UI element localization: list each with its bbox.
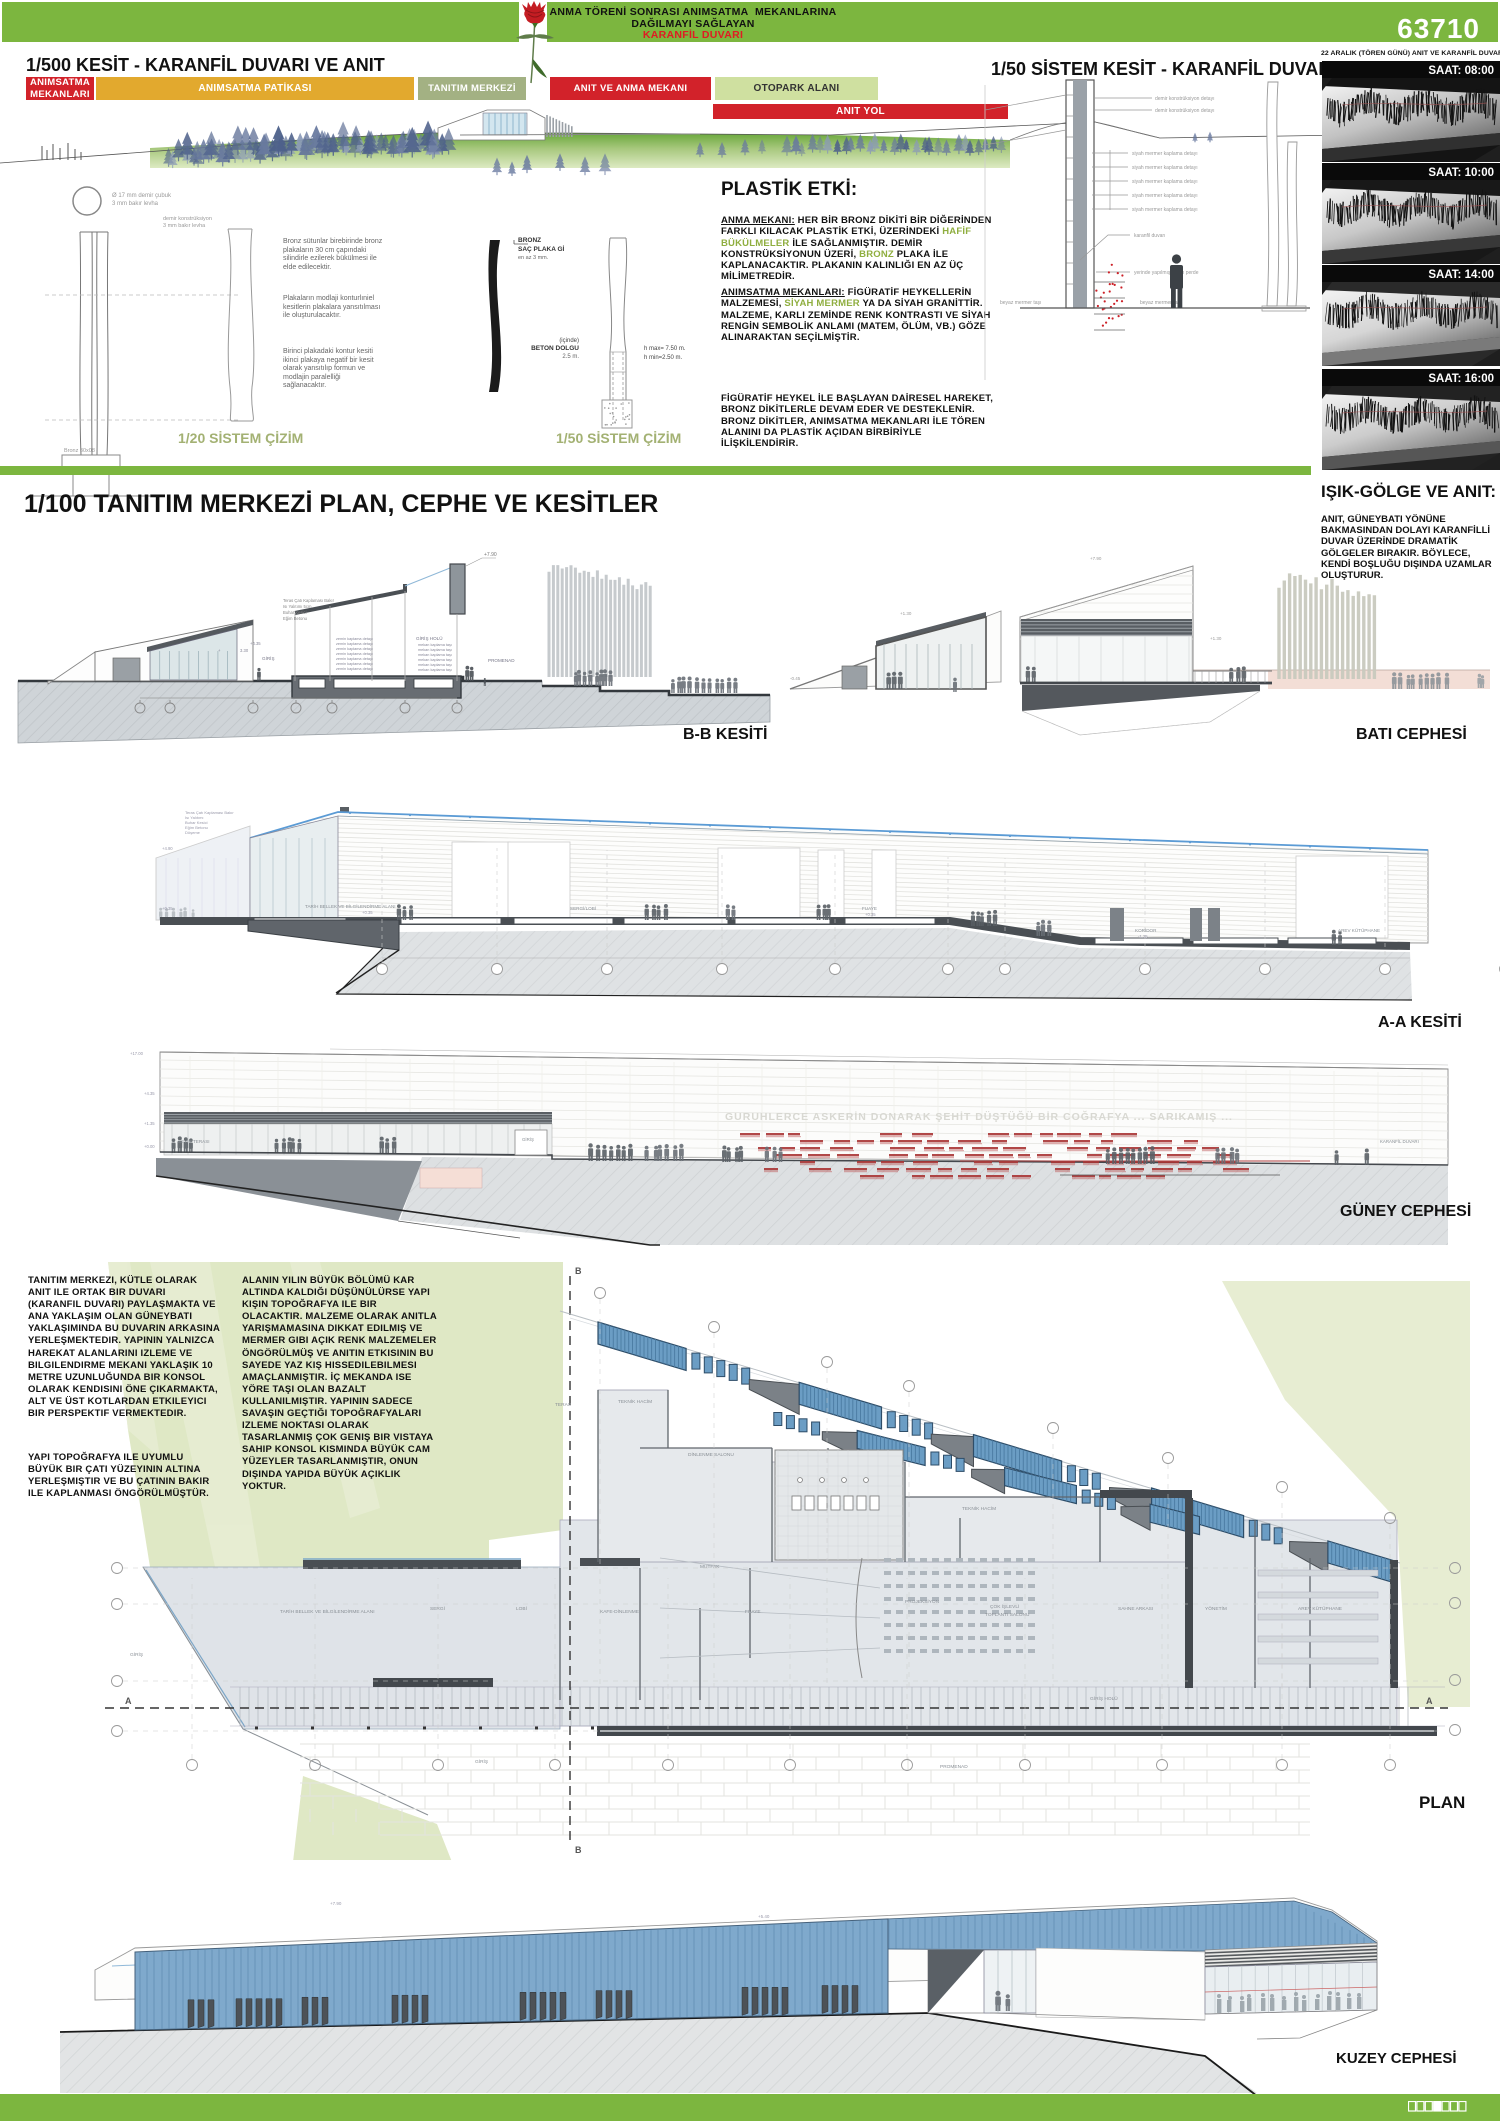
svg-text:Buhar Kesici: Buhar Kesici (283, 610, 307, 615)
svg-text:Ø 17 mm demir çubuk: Ø 17 mm demir çubuk (112, 193, 172, 199)
svg-text:demir konstrüksiyon: demir konstrüksiyon (163, 216, 212, 222)
svg-text:AREV KÜTÜPHANE: AREV KÜTÜPHANE (1298, 1605, 1342, 1612)
svg-text:SERGİ: SERGİ (430, 1605, 445, 1612)
svg-text:mekan kaplama taşı: mekan kaplama taşı (418, 648, 452, 652)
svg-text:GURUHLERCE ASKERİN DONARAK ŞEH: GURUHLERCE ASKERİN DONARAK ŞEHİT DÜŞTÜĞÜ… (725, 1110, 1233, 1123)
svg-text:KARANFİL DUVARI: KARANFİL DUVARI (1380, 1139, 1419, 1144)
svg-text:siyah mermer kaplama detayı: siyah mermer kaplama detayı (1132, 193, 1198, 199)
svg-text:YÖNETİM: YÖNETİM (1205, 1605, 1227, 1612)
svg-text:zemin kaplama detayı: zemin kaplama detayı (336, 667, 373, 671)
svg-text:+7.90: +7.90 (484, 552, 497, 558)
svg-text:SAAT: 14:00: SAAT: 14:00 (1428, 269, 1494, 281)
svg-text:yerinde yapılmış beton perde: yerinde yapılmış beton perde (1134, 270, 1199, 276)
svg-text:GİRİŞ: GİRİŞ (522, 1137, 534, 1142)
svg-text:KORİDOR: KORİDOR (1135, 927, 1157, 933)
svg-text:(içinde): (içinde) (559, 338, 579, 344)
svg-text:GİRİŞ HOLÜ: GİRİŞ HOLÜ (416, 635, 443, 641)
svg-text:GİRİŞ: GİRİŞ (475, 1758, 488, 1765)
svg-text:SEYİR TERASI: SEYİR TERASI (178, 1138, 210, 1144)
svg-text:+0.35: +0.35 (362, 910, 373, 915)
svg-text:LOBİ: LOBİ (516, 1605, 527, 1612)
svg-text:DİNLENME SALONU: DİNLENME SALONU (688, 1451, 734, 1458)
svg-text:3 mm bakır levha: 3 mm bakır levha (112, 201, 159, 207)
svg-text:demir konstrüksiyon detayı: demir konstrüksiyon detayı (1155, 108, 1214, 114)
svg-text:+4.90: +4.90 (162, 846, 173, 851)
svg-text:PROMENAD: PROMENAD (488, 658, 515, 663)
svg-text:h min=2.50 m.: h min=2.50 m. (644, 355, 683, 361)
svg-text:Teras Çatı Kaplaması Bakır: Teras Çatı Kaplaması Bakır (283, 598, 335, 603)
svg-text:+5.40: +5.40 (758, 1914, 770, 1919)
svg-text:2.5 m.: 2.5 m. (562, 354, 579, 360)
svg-text:zemin kaplama detayı: zemin kaplama detayı (336, 652, 373, 656)
svg-text:Isı Yalıtımı 5cm: Isı Yalıtımı 5cm (283, 604, 312, 609)
svg-text:BETON DOLGU: BETON DOLGU (531, 345, 579, 352)
svg-text:AREV KÜTÜPHANE: AREV KÜTÜPHANE (1338, 927, 1380, 933)
svg-text:3 mm bakır levha: 3 mm bakır levha (163, 223, 206, 229)
svg-text:SAÇ PLAKA Gİ: SAÇ PLAKA Gİ (518, 245, 565, 253)
svg-text:A: A (1426, 1696, 1433, 1706)
svg-text:+0.35: +0.35 (865, 912, 876, 917)
svg-text:-0.45: -0.45 (790, 676, 801, 681)
svg-text:zemin kaplama detayı: zemin kaplama detayı (336, 642, 373, 646)
svg-text:TEKNİK HACİM: TEKNİK HACİM (618, 1398, 652, 1405)
svg-text:SAAT: 10:00: SAAT: 10:00 (1428, 167, 1494, 179)
svg-text:mekan kaplama taşı: mekan kaplama taşı (418, 643, 452, 647)
svg-text:mekan kaplama taşı: mekan kaplama taşı (418, 668, 452, 672)
svg-text:SERGİ/LOBİ: SERGİ/LOBİ (570, 905, 596, 911)
svg-text:TARİH BELLEK VE BİLGİLENDİRME: TARİH BELLEK VE BİLGİLENDİRME ALANI (280, 1608, 375, 1615)
svg-text:-1.35: -1.35 (1138, 934, 1148, 939)
svg-text:+0.00: +0.00 (144, 1144, 155, 1149)
svg-text:+4.35: +4.35 (250, 641, 261, 646)
svg-text:+4.35: +4.35 (144, 1091, 155, 1096)
svg-text:B: B (575, 1266, 582, 1276)
svg-text:FUAYE: FUAYE (745, 1609, 761, 1615)
svg-text:en az 3 mm.: en az 3 mm. (518, 255, 549, 261)
svg-text:h max= 7.50 m.: h max= 7.50 m. (644, 346, 686, 352)
svg-text:A: A (125, 1696, 132, 1706)
svg-text:zemin kaplama detayı: zemin kaplama detayı (336, 662, 373, 666)
svg-text:PROMENAD: PROMENAD (940, 1764, 968, 1770)
svg-text:+1.35: +1.35 (144, 1121, 155, 1126)
svg-text:+17.00: +17.00 (130, 1051, 144, 1056)
svg-text:SAAT: 08:00: SAAT: 08:00 (1428, 65, 1494, 77)
svg-text:+0.35: +0.35 (162, 906, 173, 911)
svg-text:+1.30: +1.30 (900, 611, 912, 616)
svg-text:mekan kaplama taşı: mekan kaplama taşı (418, 653, 452, 657)
svg-text:zemin kaplama detayı: zemin kaplama detayı (336, 657, 373, 661)
svg-text:SAHNE ARKASI: SAHNE ARKASI (1118, 1606, 1153, 1612)
svg-text:+7.90: +7.90 (330, 1901, 342, 1906)
svg-text:B: B (575, 1845, 582, 1855)
svg-text:Bronz 30x08: Bronz 30x08 (64, 448, 95, 454)
svg-text:GİRİŞ: GİRİŞ (130, 1651, 143, 1658)
svg-text:KAFE-DİNLENME: KAFE-DİNLENME (600, 1608, 639, 1615)
svg-text:mekan kaplama taşı: mekan kaplama taşı (418, 663, 452, 667)
svg-text:zemin kaplama detayı: zemin kaplama detayı (336, 647, 373, 651)
svg-text:MUTFAK: MUTFAK (700, 1564, 720, 1570)
svg-text:TOPLANTI SALONU: TOPLANTI SALONU (985, 1612, 1030, 1618)
svg-text:siyah mermer kaplama detayı: siyah mermer kaplama detayı (1132, 151, 1198, 157)
svg-text:TERAS: TERAS (555, 1402, 571, 1408)
svg-text:demir konstrüksiyon detayı: demir konstrüksiyon detayı (1155, 96, 1214, 102)
svg-text:TEKNİK HACİM: TEKNİK HACİM (962, 1505, 996, 1512)
svg-text:siyah mermer kaplama detayı: siyah mermer kaplama detayı (1132, 179, 1198, 185)
svg-text:FUAYE: FUAYE (862, 906, 877, 911)
svg-text:Döşeme: Döşeme (185, 830, 201, 835)
svg-text:zemin kaplama detayı: zemin kaplama detayı (336, 637, 373, 641)
svg-text:SAAT: 16:00: SAAT: 16:00 (1428, 373, 1494, 385)
svg-text:Eğim Betonu: Eğim Betonu (283, 616, 308, 621)
svg-text:GİRİŞ: GİRİŞ (262, 655, 275, 661)
svg-text:karanfil duvarı: karanfil duvarı (1134, 233, 1165, 239)
svg-text:mekan kaplama taşı: mekan kaplama taşı (418, 658, 452, 662)
svg-text:BRONZ: BRONZ (518, 237, 541, 244)
svg-text:siyah mermer kaplama detayı: siyah mermer kaplama detayı (1132, 165, 1198, 171)
svg-text:GİRİŞ HOLÜ: GİRİŞ HOLÜ (1090, 1695, 1118, 1702)
svg-text:+1.30: +1.30 (1210, 636, 1222, 641)
svg-text:+7.90: +7.90 (1090, 556, 1102, 561)
svg-text:siyah mermer kaplama detayı: siyah mermer kaplama detayı (1132, 207, 1198, 213)
svg-text:beyaz mermer taşı: beyaz mermer taşı (1000, 300, 1041, 306)
